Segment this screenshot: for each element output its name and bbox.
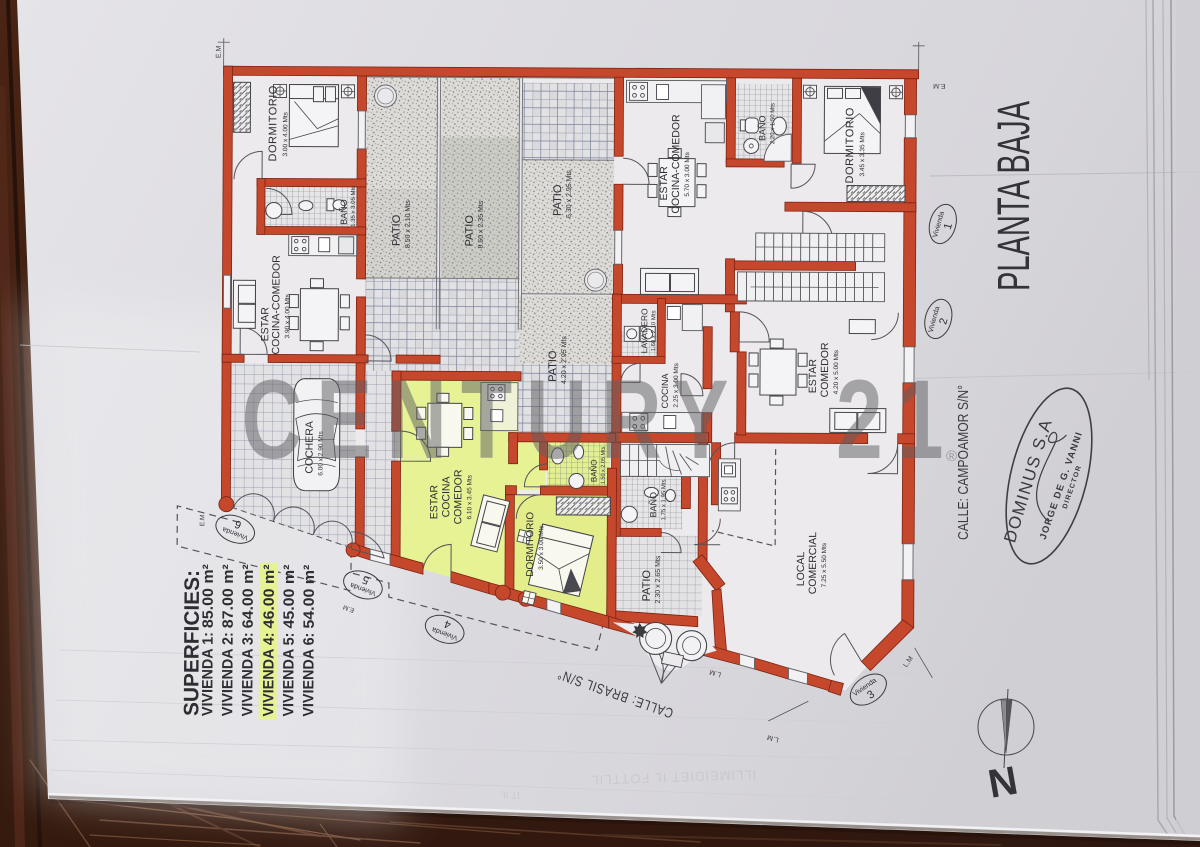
- svg-text:VIVIENDA 5:: VIVIENDA 5:: [280, 632, 297, 716]
- svg-text:VIVIENDA 6:: VIVIENDA 6:: [300, 633, 317, 717]
- svg-text:DORMITORIO: DORMITORIO: [844, 107, 856, 183]
- svg-text:1.75 x 1.95 Mts: 1.75 x 1.95 Mts: [661, 479, 667, 520]
- svg-text:1.35 x 3.05 Mts: 1.35 x 3.05 Mts: [351, 186, 357, 227]
- svg-text:3.90 x 4.00 Mts: 3.90 x 4.00 Mts: [284, 293, 291, 338]
- svg-text:6.30 x 2.95 Mts: 6.30 x 2.95 Mts: [566, 170, 573, 218]
- svg-text:VIVIENDA 1:: VIVIENDA 1:: [199, 632, 216, 716]
- svg-text:COCINA: COCINA: [660, 373, 670, 408]
- svg-text:COCINA-COMEDOR: COCINA-COMEDOR: [670, 114, 683, 214]
- svg-text:64.00 m²: 64.00 m²: [240, 564, 257, 628]
- svg-text:E.M: E.M: [216, 46, 223, 59]
- svg-text:VIVIENDA 2:: VIVIENDA 2:: [219, 632, 236, 716]
- svg-text:3.50 x 3.00 Mts: 3.50 x 3.00 Mts: [538, 525, 545, 570]
- svg-text:2.30 x 2.65 Mts: 2.30 x 2.65 Mts: [655, 555, 662, 603]
- svg-text:DORMITORIO: DORMITORIO: [525, 512, 536, 577]
- svg-text:BAÑO: BAÑO: [648, 492, 658, 518]
- svg-text:VIVIENDA 3:: VIVIENDA 3:: [239, 632, 256, 716]
- svg-text:E.M: E.M: [199, 514, 206, 526]
- svg-text:ESTAR: ESTAR: [658, 166, 670, 201]
- svg-text:7.25 x 5.50 Mts: 7.25 x 5.50 Mts: [821, 542, 828, 587]
- svg-text:3.45 x 3.35 Mts: 3.45 x 3.35 Mts: [859, 131, 866, 176]
- svg-text:8.50 x 2.35 Mts: 8.50 x 2.35 Mts: [478, 200, 485, 248]
- svg-text:8.50 x 2.10 Mts: 8.50 x 2.10 Mts: [405, 200, 412, 248]
- svg-text:LAVADERO: LAVADERO: [639, 308, 649, 353]
- svg-text:3.00 x 4.00 Mts: 3.00 x 4.00 Mts: [282, 111, 289, 156]
- svg-text:PLANTA BAJA: PLANTA BAJA: [988, 101, 1039, 291]
- svg-text:87.00 m²: 87.00 m²: [220, 564, 237, 628]
- svg-text:85.00 m²: 85.00 m²: [200, 564, 217, 628]
- svg-text:1.60 x 2.10 Mts: 1.60 x 2.10 Mts: [651, 310, 657, 351]
- svg-text:PATIO: PATIO: [464, 215, 476, 247]
- svg-text:46.00 m²: 46.00 m²: [261, 564, 278, 628]
- svg-text:E.M: E.M: [933, 82, 946, 89]
- svg-text:BAÑO: BAÑO: [757, 115, 767, 141]
- svg-text:PATIO: PATIO: [552, 184, 564, 216]
- svg-text:54.00 m²: 54.00 m²: [301, 565, 318, 629]
- svg-text:IT IL: IT IL: [500, 789, 520, 800]
- svg-text:COMERCIAL: COMERCIAL: [807, 532, 819, 595]
- svg-text:2.20 x 1.50 Mts: 2.20 x 1.50 Mts: [770, 103, 776, 144]
- svg-text:PATIO: PATIO: [391, 214, 403, 246]
- svg-text:LOCAL: LOCAL: [795, 552, 807, 587]
- svg-text:PATIO: PATIO: [641, 570, 653, 602]
- svg-text:COCHERA: COCHERA: [304, 421, 316, 474]
- svg-text:COCINA: COCINA: [440, 476, 452, 517]
- svg-text:BAÑO: BAÑO: [589, 459, 598, 482]
- svg-text:CALLE: CAMPOAMOR S/N°: CALLE: CAMPOAMOR S/N°: [955, 385, 972, 540]
- svg-text:BAÑO: BAÑO: [339, 199, 349, 225]
- svg-text:5.70 x 3.00 Mts: 5.70 x 3.00 Mts: [684, 151, 691, 196]
- svg-text:45.00 m²: 45.00 m²: [281, 564, 298, 628]
- svg-text:COCINA-COMEDOR: COCINA-COMEDOR: [270, 255, 283, 355]
- svg-text:DORMITORIO: DORMITORIO: [267, 85, 279, 161]
- svg-text:ESTAR: ESTAR: [428, 485, 440, 520]
- svg-text:VIVIENDA 4:: VIVIENDA 4:: [260, 632, 277, 716]
